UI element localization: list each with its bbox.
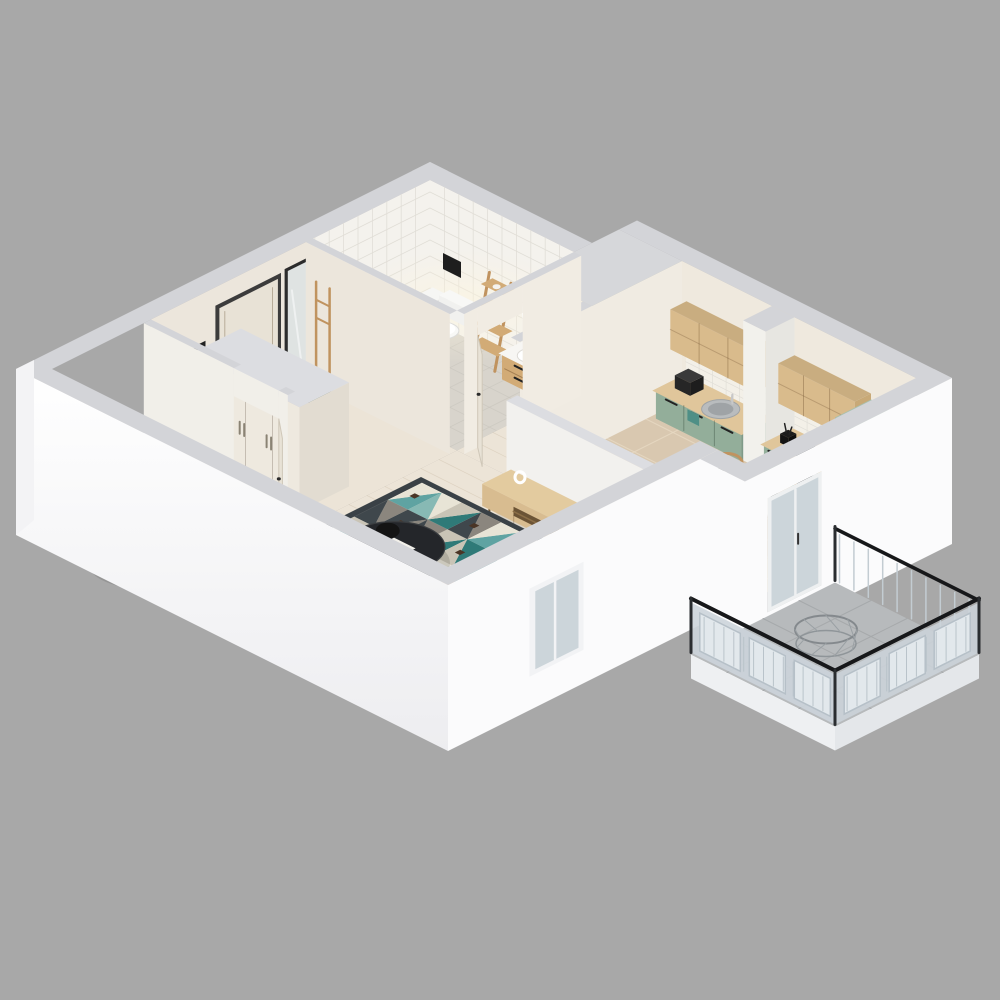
bathroom-door bbox=[478, 335, 483, 466]
pillar bbox=[743, 320, 766, 471]
apartment-floor-plan-render bbox=[0, 0, 1000, 1000]
isometric-scene bbox=[0, 0, 1000, 1000]
